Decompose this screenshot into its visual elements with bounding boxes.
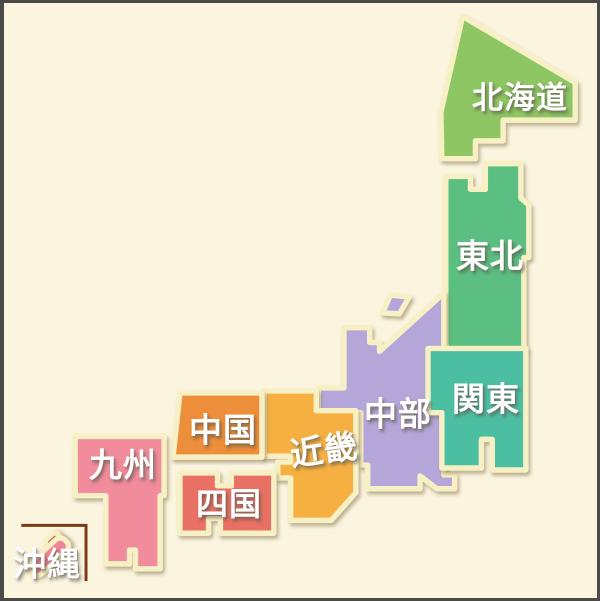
label-shikoku: 四国 [196,488,262,520]
label-kanto: 関東 [452,383,520,416]
label-chubu: 中部 [364,398,432,431]
label-tohoku: 東北 [456,240,524,273]
japan-region-map: 北海道 東北 関東 中部 近畿 中国 四国 九州 沖縄 [0,0,600,601]
label-hokkaido: 北海道 [472,84,568,115]
label-kinki: 近畿 [288,429,360,471]
label-okinawa: 沖縄 [13,548,81,581]
label-kyushu: 九州 [89,449,157,482]
label-chugoku: 中国 [189,414,257,447]
chubu-island-shape[interactable] [383,295,410,314]
